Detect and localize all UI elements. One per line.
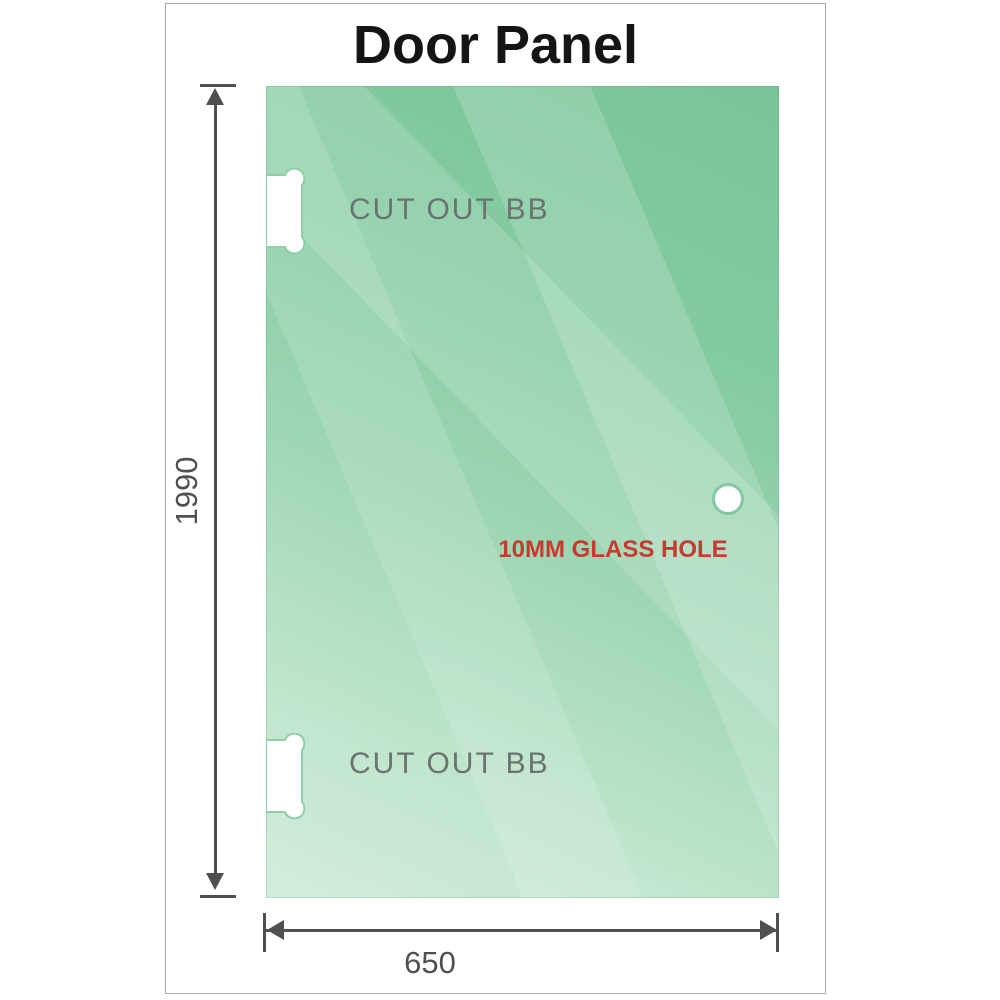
glass-hole-label: 10MM GLASS HOLE [498,536,727,564]
height-dim-cap-bottom [200,895,236,898]
height-dim-arrow-down-icon [206,873,224,890]
width-dim-label: 650 [404,945,456,981]
cutout-label-top: CUT OUT BB [349,193,550,227]
diagram-title: Door Panel [166,14,825,76]
height-dim-line [214,97,217,880]
cutout-label-bottom: CUT OUT BB [349,747,550,781]
page: Door Panel CUT OUT BB CUT OUT BB 10MM GL… [0,0,1000,1000]
glass-hole-icon [712,483,744,515]
hinge-cutout-bottom-icon [266,733,313,820]
height-dim-label: 1990 [169,457,205,526]
drawing-frame: Door Panel CUT OUT BB CUT OUT BB 10MM GL… [165,3,826,994]
height-dim-arrow-up-icon [206,88,224,105]
hinge-cutout-top-icon [266,168,313,255]
width-dim-tick-left [263,913,266,952]
width-dim-arrow-left-icon [267,920,284,940]
height-dim-cap-top [200,84,236,87]
width-dim-line [266,929,778,932]
width-dim-arrow-right-icon [760,920,777,940]
